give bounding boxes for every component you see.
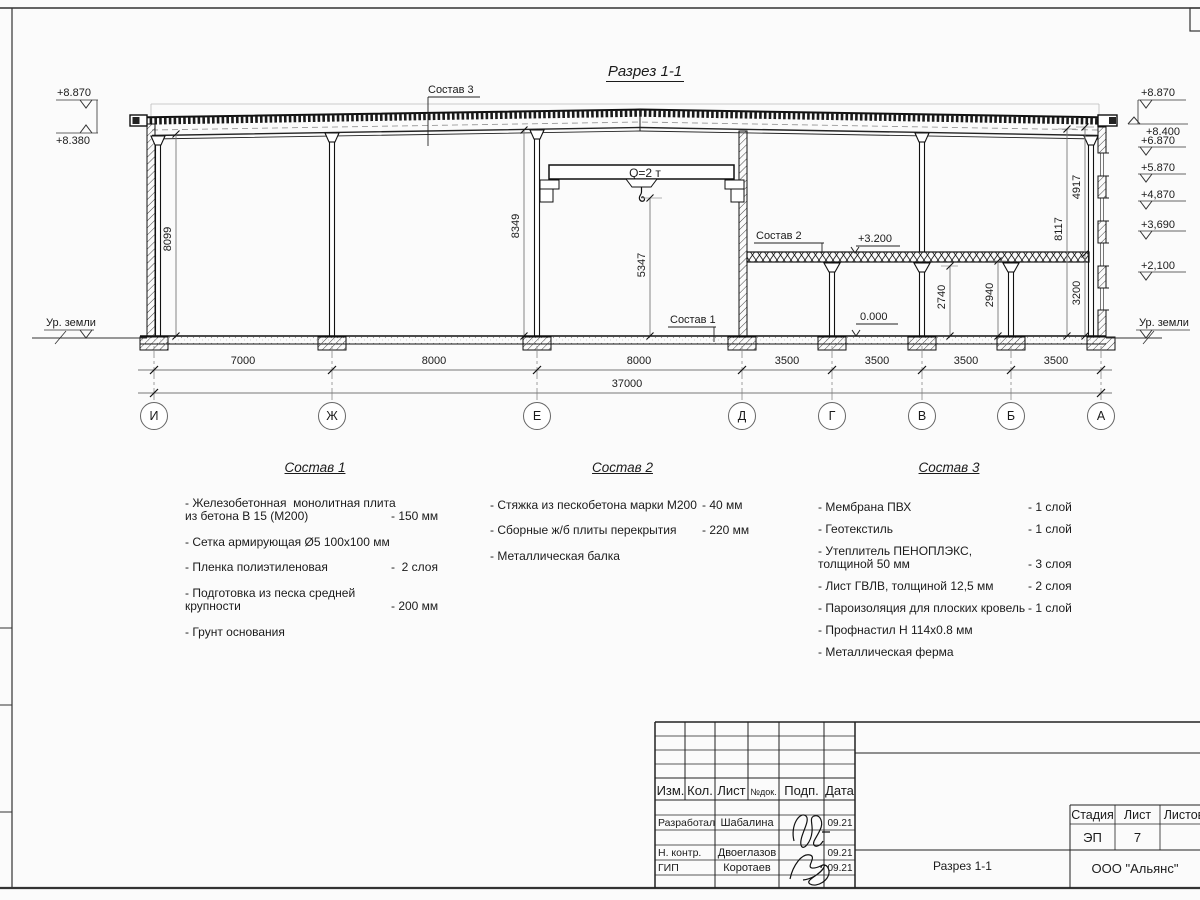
dim-3500-1: 3500 — [757, 355, 817, 367]
sostav3-list: Состав 3 - Мембрана ПВХ- 1 слой - Геотек… — [818, 461, 1080, 668]
drawing-sheet: Разрез 1-1 Состав 3 Состав 2 Состав 1 +3… — [0, 0, 1200, 900]
list-item: - Утеплитель ПЕНОПЛЭКС, толщиной 50 мм- … — [818, 545, 1080, 572]
list-item: - Пленка полиэтиленовая- 2 слоя — [185, 561, 445, 575]
axis-d: Д — [731, 409, 753, 423]
axis-v: В — [911, 409, 933, 423]
tb-name-developer: Шабалина — [716, 817, 778, 829]
axis-g: Г — [821, 409, 843, 423]
dim-3500-2: 3500 — [847, 355, 907, 367]
dim-4917: 4917 — [1071, 157, 1083, 217]
list-item: - Пароизоляция для плоских кровель- 1 сл… — [818, 602, 1080, 616]
columns — [151, 130, 1098, 336]
signature-2 — [790, 855, 829, 885]
dim-8000-2: 8000 — [609, 355, 669, 367]
list-item: - Сборные ж/б плиты перекрытия- 220 мм — [490, 524, 755, 538]
sostav3-title: Состав 3 — [818, 461, 1080, 475]
list-item: - Профнастил Н 114х0.8 мм — [818, 624, 1080, 638]
elev-right-4870: +4,870 — [1141, 189, 1175, 201]
tb-name-ncontrol: Двоеглазов — [716, 847, 778, 859]
list-item: - Железобетонная монолитная плита из бет… — [185, 497, 445, 524]
callout-sostav2: Состав 2 — [756, 230, 802, 242]
truss-dashed-line — [152, 122, 1098, 130]
callout-sostav1: Состав 1 — [670, 314, 716, 326]
list-item: - Подготовка из песка средней крупности-… — [185, 587, 445, 614]
sheet-frame — [0, 8, 1200, 888]
roof — [130, 109, 1117, 139]
elev-right-3690: +3,690 — [1141, 219, 1175, 231]
dim-8000-1: 8000 — [404, 355, 464, 367]
tb-stage-value: ЭП — [1070, 830, 1115, 845]
elev-right-6870: +6.870 — [1141, 135, 1175, 147]
level-zero-label: 0.000 — [860, 311, 888, 323]
dim-8349: 8349 — [510, 196, 522, 256]
tb-role-gip: ГИП — [658, 862, 679, 874]
list-item: - Лист ГВЛВ, толщиной 12,5 мм- 2 слоя — [818, 580, 1080, 594]
list-item: - Мембрана ПВХ- 1 слой — [818, 501, 1080, 515]
axis-bubbles — [141, 403, 1115, 430]
axis-b: Б — [1000, 409, 1022, 423]
tb-stage-header: Стадия — [1070, 808, 1115, 822]
dim-37000: 37000 — [597, 378, 657, 390]
crane-hook — [639, 187, 644, 201]
crane-trolley — [626, 179, 657, 187]
tb-header-list: Лист — [715, 783, 748, 798]
axis-a: А — [1090, 409, 1112, 423]
left-wall — [147, 124, 155, 336]
dim-7000: 7000 — [213, 355, 273, 367]
list-item: - Геотекстиль- 1 слой — [818, 523, 1080, 537]
axis-zh: Ж — [321, 409, 343, 423]
tb-sheet-number: 7 — [1115, 830, 1160, 845]
axis-e: Е — [526, 409, 548, 423]
drawing-title: Разрез 1-1 — [555, 63, 735, 80]
tb-header-podp: Подп. — [779, 783, 824, 798]
tb-date-gip: 09.21 — [826, 863, 854, 874]
tb-name-gip: Коротаев — [716, 862, 778, 874]
level-slab-label: +3.200 — [858, 233, 892, 245]
sostav1-list: Состав 1 - Железобетонная монолитная пли… — [185, 461, 445, 651]
sostav1-title: Состав 1 — [185, 461, 445, 475]
dim-3500-3: 3500 — [936, 355, 996, 367]
drawing-canvas — [0, 0, 1200, 900]
dim-8099: 8099 — [162, 209, 174, 269]
elevation-marks — [44, 100, 1190, 338]
list-item: - Стяжка из пескобетона марки М200- 40 м… — [490, 499, 755, 513]
axis-i: И — [143, 409, 165, 423]
mezzanine-slab — [747, 252, 1089, 262]
dim-3500-4: 3500 — [1026, 355, 1086, 367]
tb-header-data: Дата — [824, 783, 855, 798]
tb-header-izm: Изм. — [656, 783, 685, 798]
vertical-dim-lines — [176, 127, 1094, 336]
tb-date-ncontrol: 09.21 — [826, 848, 854, 859]
middle-wall-axis-d — [739, 131, 747, 336]
elev-left-8380: +8.380 — [56, 135, 90, 147]
elev-right-ground: Ур. земли — [1139, 317, 1189, 329]
list-item: - Грунт основания — [185, 626, 445, 640]
elev-left-ground: Ур. земли — [46, 317, 96, 329]
elev-right-8870: +8.870 — [1141, 87, 1175, 99]
tb-sheet-header: Лист — [1115, 808, 1160, 822]
tb-role-ncontrol: Н. контр. — [658, 847, 701, 859]
elev-left-8870: +8.870 — [57, 87, 91, 99]
elev-right-5870: +5.870 — [1141, 162, 1175, 174]
vertical-dim-ticks — [173, 124, 1089, 340]
tb-sheets-header: Листов — [1160, 808, 1200, 822]
dim-2940: 2940 — [984, 265, 996, 325]
tb-date-developer: 09.21 — [826, 818, 854, 829]
callout-sostav3: Состав 3 — [428, 84, 474, 96]
tb-header-kol: Кол. — [685, 783, 715, 798]
tb-doc-name: Разрез 1-1 — [870, 859, 1055, 873]
sostav2-list: Состав 2 - Стяжка из пескобетона марки М… — [490, 461, 755, 575]
crane-capacity-label: Q=2 т — [600, 166, 690, 180]
crane-bracket-left — [540, 180, 559, 189]
dim-2740: 2740 — [936, 267, 948, 327]
sostav2-title: Состав 2 — [490, 461, 755, 475]
tb-role-developer: Разработал — [658, 817, 715, 829]
tb-header-ndok: №док. — [748, 787, 779, 797]
crane-bracket-right — [725, 180, 744, 189]
right-wall — [1098, 127, 1109, 336]
dim-3200: 3200 — [1071, 263, 1083, 323]
tb-company: ООО "Альянс" — [1072, 861, 1198, 876]
list-item: - Металлическая ферма — [818, 646, 1080, 660]
dim-5347: 5347 — [636, 235, 648, 295]
list-item: - Металлическая балка — [490, 550, 755, 564]
elev-right-2100: +2,100 — [1141, 260, 1175, 272]
dim-8117: 8117 — [1053, 199, 1065, 259]
list-item: - Сетка армирующая Ø5 100x100 мм — [185, 536, 445, 550]
floor — [140, 336, 1106, 344]
